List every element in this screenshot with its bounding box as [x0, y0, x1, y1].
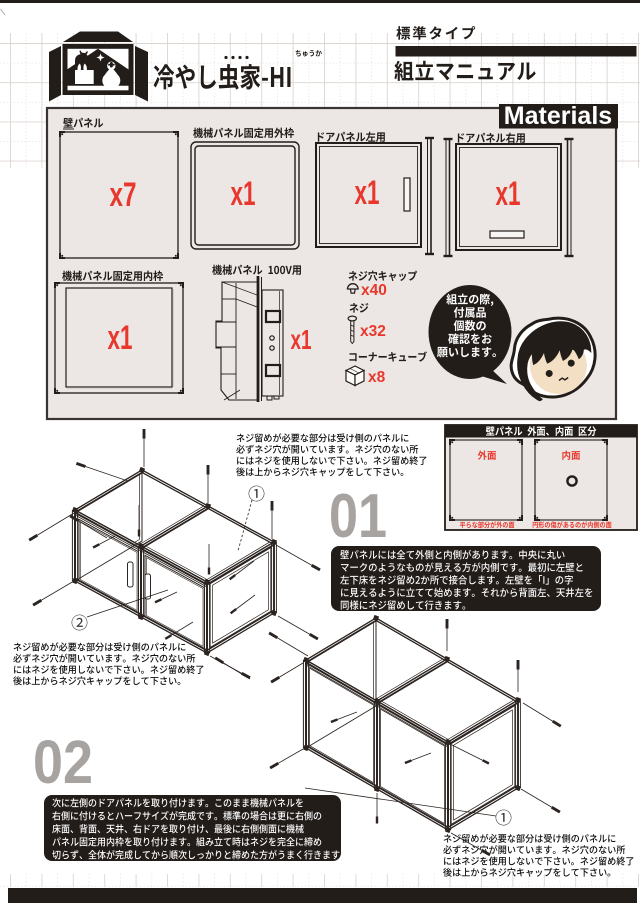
svg-text:x8: x8 [368, 369, 386, 386]
svg-text:x40: x40 [361, 282, 387, 299]
svg-text:02: 02 [33, 728, 93, 796]
svg-text:x1: x1 [496, 175, 521, 213]
svg-text:x32: x32 [360, 323, 386, 340]
svg-text:x1: x1 [291, 324, 312, 355]
svg-text:Materials: Materials [504, 102, 612, 130]
svg-text:x1: x1 [231, 175, 256, 213]
svg-text:x1: x1 [108, 319, 133, 357]
svg-text:x1: x1 [355, 174, 380, 212]
svg-text:x7: x7 [110, 176, 137, 214]
svg-text:01: 01 [329, 482, 387, 551]
